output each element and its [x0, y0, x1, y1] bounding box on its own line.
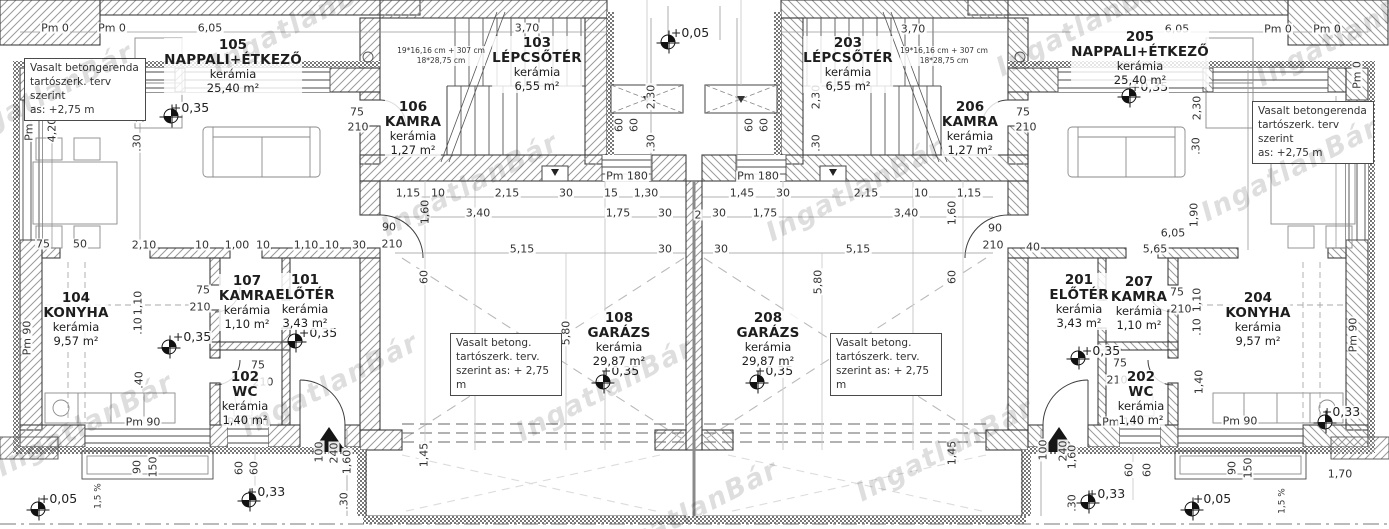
annotation-layer: Pm 0Pm 06,053,703,706,05Pm 0Pm 0Pm 04,20…: [0, 0, 1389, 529]
room-number: 203: [803, 36, 893, 51]
room-name: KONYHA: [43, 306, 108, 321]
level-marker-icon: [31, 502, 46, 517]
room-label-103: 103LÉPCSŐTÉRkerámia6,55 m²: [492, 36, 582, 93]
room-name: GARÁZS: [587, 326, 650, 341]
dim-label: 210: [1170, 304, 1193, 315]
dim-label: 75: [1015, 107, 1031, 118]
room-label-202: 202WCkerámia1,40 m²: [1118, 370, 1165, 427]
dim-label: 60: [249, 460, 260, 476]
dim-label: 60: [614, 117, 625, 133]
dim-label: Pm 90: [1222, 416, 1259, 427]
watermark: IngatlanBár: [597, 456, 783, 529]
room-number: 204: [1225, 291, 1290, 306]
dim-label: Pm 0: [1352, 60, 1363, 90]
room-material: kerámia: [736, 341, 799, 355]
dim-label: Pm 90: [22, 320, 33, 357]
dim-label: 1,30: [633, 188, 660, 199]
room-area: 29,87 m²: [736, 355, 799, 369]
dim-label: 40: [1025, 242, 1041, 253]
dim-label: 1,10: [133, 290, 144, 317]
dim-label: 60: [419, 269, 430, 285]
dim-label: 30: [775, 188, 791, 199]
dim-label: 3,70: [514, 23, 541, 34]
room-number: 104: [43, 291, 108, 306]
dim-label: Pm 180: [736, 171, 780, 182]
dim-label: Pm 90: [1348, 317, 1359, 354]
construction-note: Vasalt betong.tartószerk. terv.szerint a…: [450, 333, 562, 396]
room-name: KAMRA: [385, 115, 441, 130]
room-area: 1,27 m²: [942, 144, 998, 158]
room-number: 108: [587, 311, 650, 326]
dim-label: 1,60: [947, 200, 958, 227]
dim-label: 100: [314, 441, 325, 464]
room-name: ELŐTÉR: [275, 288, 334, 303]
note-line: szerint as: + 2,75 m: [836, 365, 936, 393]
dim-label: .10: [1192, 317, 1203, 337]
dim-label: 2,15: [494, 188, 521, 199]
level-marker-icon: [164, 109, 179, 124]
dim-label: 60: [1142, 462, 1153, 478]
room-label-107: 107KAMRAkerámia1,10 m²: [219, 274, 275, 331]
dim-label: 60: [234, 460, 245, 476]
room-label-206: 206KAMRAkerámia1,27 m²: [942, 100, 998, 157]
room-label-204: 204KONYHAkerámia9,57 m²: [1225, 291, 1290, 348]
dim-label: .30: [1067, 493, 1078, 513]
dim-label: 150: [148, 456, 159, 479]
dim-label: 6,05: [197, 23, 224, 34]
dim-label: 90: [1227, 460, 1238, 476]
room-area: 1,40 m²: [1118, 414, 1165, 428]
stair-note: 19*16,16 cm + 307 cm18*28,75 cm: [900, 46, 988, 66]
dim-label: 60: [947, 269, 958, 285]
dim-label: 60: [744, 117, 755, 133]
dim-label: 1,60: [342, 449, 353, 476]
dim-label: 1,5 %: [95, 482, 104, 510]
room-name: KONYHA: [1225, 306, 1290, 321]
dim-label: Pm 0: [1263, 24, 1293, 35]
dim-label: 2,10: [131, 240, 158, 251]
room-material: kerámia: [803, 66, 893, 80]
dim-label: 210: [982, 240, 1005, 251]
stair-note-line: 18*28,75 cm: [900, 56, 988, 66]
room-area: 1,10 m²: [219, 318, 275, 332]
level-marker-icon: [661, 35, 676, 50]
dim-label: 5,80: [813, 269, 824, 296]
room-label-101: 101ELŐTÉRkerámia3,43 m²: [275, 273, 334, 330]
dim-label: 3,40: [465, 208, 492, 219]
dim-label: 30: [657, 244, 673, 255]
dim-label: 75: [349, 107, 365, 118]
room-material: kerámia: [1049, 303, 1108, 317]
room-number: 207: [1111, 275, 1167, 290]
dim-label: Pm 0: [97, 23, 127, 34]
room-material: kerámia: [385, 130, 441, 144]
room-number: 102: [222, 370, 269, 385]
room-area: 6,55 m²: [492, 80, 582, 94]
room-label-104: 104KONYHAkerámia9,57 m²: [43, 291, 108, 348]
watermark: IngatlanBár: [852, 394, 1038, 507]
note-line: tartószerk. terv.: [456, 351, 556, 365]
dim-label: 5,15: [845, 244, 872, 255]
room-name: NAPPALI+ÉTKEZŐ: [1071, 45, 1209, 60]
level-label: +0,05: [670, 27, 710, 40]
dim-label: 6,05: [1160, 228, 1187, 239]
room-number: 208: [736, 311, 799, 326]
dim-label: 1,00: [224, 240, 251, 251]
dim-label: 5,15: [509, 244, 536, 255]
room-area: 3,43 m²: [275, 317, 334, 331]
room-number: 201: [1049, 273, 1108, 288]
room-label-207: 207KAMRAkerámia1,10 m²: [1111, 275, 1167, 332]
note-line: Vasalt betong.: [836, 337, 936, 351]
dim-label: Pm 180: [605, 171, 649, 182]
room-number: 101: [275, 273, 334, 288]
room-number: 107: [219, 274, 275, 289]
room-area: 6,55 m²: [803, 80, 893, 94]
dim-label: 75: [1112, 358, 1128, 369]
dim-label: 1,10: [293, 240, 320, 251]
dim-label: 60: [1124, 462, 1135, 478]
room-material: kerámia: [219, 304, 275, 318]
dim-label: 10: [255, 240, 271, 251]
room-material: kerámia: [43, 321, 108, 335]
dim-label: 2: [694, 210, 703, 221]
note-line: Vasalt betongerenda: [1258, 105, 1368, 119]
dim-label: 90: [987, 223, 1003, 234]
room-name: KAMRA: [942, 115, 998, 130]
level-marker-icon: [1185, 502, 1200, 517]
dim-label: 240: [329, 442, 340, 465]
level-marker-icon: [1122, 89, 1137, 104]
dim-label: .30: [339, 491, 350, 511]
room-name: KAMRA: [1111, 290, 1167, 305]
dim-label: 5,65: [1142, 244, 1169, 255]
dim-label: 1,45: [419, 442, 430, 469]
level-marker-icon: [1318, 415, 1333, 430]
room-area: 3,43 m²: [1049, 317, 1108, 331]
dim-label: 210: [189, 302, 212, 313]
stair-note-line: 19*16,16 cm + 307 cm: [397, 46, 485, 56]
dim-label: 75: [195, 285, 211, 296]
room-name: GARÁZS: [736, 326, 799, 341]
dim-label: 1,5 %: [1279, 487, 1288, 515]
room-area: 9,57 m²: [1225, 335, 1290, 349]
room-name: ELŐTÉR: [1049, 288, 1108, 303]
dim-label: 1,70: [1327, 469, 1354, 480]
dim-label: 60: [629, 117, 640, 133]
dim-label: 2,30: [646, 84, 657, 111]
dim-label: 100: [1038, 439, 1049, 462]
dim-label: 150: [1243, 457, 1254, 480]
dim-label: 210: [347, 122, 370, 133]
dim-label: 3,40: [893, 208, 920, 219]
dim-label: 1,75: [605, 208, 632, 219]
dim-label: 1,10: [1192, 287, 1203, 314]
room-material: kerámia: [942, 130, 998, 144]
room-name: WC: [1118, 385, 1165, 400]
dim-label: 3,70: [900, 24, 927, 35]
dim-label: 30: [711, 208, 727, 219]
dim-label: 1,45: [729, 188, 756, 199]
dim-label: 60: [759, 117, 770, 133]
room-name: KAMRA: [219, 289, 275, 304]
note-line: szerint as: + 2,75 m: [456, 365, 556, 393]
room-area: 25,40 m²: [1071, 74, 1209, 88]
note-line: Vasalt betong.: [456, 337, 556, 351]
dim-label: .30: [132, 133, 143, 153]
dim-label: .30: [646, 133, 657, 153]
stair-note: 19*16,16 cm + 307 cm18*28,75 cm: [397, 46, 485, 66]
room-number: 103: [492, 36, 582, 51]
dim-label: 75: [35, 239, 51, 250]
room-number: 106: [385, 100, 441, 115]
room-number: 206: [942, 100, 998, 115]
dim-label: 1,15: [956, 188, 983, 199]
dim-label: 30: [657, 208, 673, 219]
dim-label: 210: [1015, 122, 1038, 133]
level-marker-icon: [750, 375, 765, 390]
room-area: 9,57 m²: [43, 335, 108, 349]
dim-label: 50: [72, 239, 88, 250]
note-line: tartószerk. terv.: [836, 351, 936, 365]
dim-label: 15: [603, 188, 619, 199]
dim-label: 1,40: [1194, 369, 1205, 396]
level-marker-icon: [162, 340, 177, 355]
room-label-203: 203LÉPCSŐTÉRkerámia6,55 m²: [803, 36, 893, 93]
level-marker-icon: [242, 493, 257, 508]
watermark: IngatlanBár: [1252, 0, 1389, 91]
level-label: +0,35: [172, 331, 212, 344]
dim-label: 10: [194, 240, 210, 251]
room-label-201: 201ELŐTÉRkerámia3,43 m²: [1049, 273, 1108, 330]
dim-label: 10: [324, 240, 340, 251]
room-material: kerámia: [275, 303, 334, 317]
room-material: kerámia: [1118, 400, 1165, 414]
room-material: kerámia: [1071, 60, 1209, 74]
level-marker-icon: [1081, 495, 1096, 510]
dim-label: 90: [132, 459, 143, 475]
dim-label: 30: [713, 244, 729, 255]
room-area: 25,40 m²: [164, 82, 302, 96]
dim-label: .30: [1191, 136, 1202, 156]
room-name: LÉPCSŐTÉR: [492, 51, 582, 66]
room-material: kerámia: [1111, 305, 1167, 319]
room-name: LÉPCSŐTÉR: [803, 51, 893, 66]
dim-label: 2,30: [1192, 95, 1203, 122]
construction-note: Vasalt betong.tartószerk. terv.szerint a…: [830, 333, 942, 396]
dim-label: .10: [133, 316, 144, 336]
level-marker-icon: [288, 334, 303, 349]
dim-label: 30: [558, 188, 574, 199]
floorplan: Pm 0Pm 06,053,703,706,05Pm 0Pm 0Pm 04,20…: [0, 0, 1389, 529]
room-label-208: 208GARÁZSkerámia29,87 m²: [736, 311, 799, 368]
level-label: +0,35: [1081, 345, 1121, 358]
dim-label: Pm 0: [40, 23, 70, 34]
level-marker-icon: [1071, 351, 1086, 366]
dim-label: 5,80: [561, 320, 572, 347]
dim-label: 10: [913, 188, 929, 199]
room-area: 1,10 m²: [1111, 319, 1167, 333]
room-label-106: 106KAMRAkerámia1,27 m²: [385, 100, 441, 157]
room-material: kerámia: [1225, 321, 1290, 335]
dim-label: 1,60: [1067, 444, 1078, 471]
stair-note-line: 19*16,16 cm + 307 cm: [900, 46, 988, 56]
dim-label: .30: [811, 133, 822, 153]
room-number: 202: [1118, 370, 1165, 385]
room-name: WC: [222, 385, 269, 400]
dim-label: 30: [351, 240, 367, 251]
room-area: 1,27 m²: [385, 144, 441, 158]
dim-label: 75: [1169, 287, 1185, 298]
stair-note-line: 18*28,75 cm: [397, 56, 485, 66]
room-material: kerámia: [492, 66, 582, 80]
